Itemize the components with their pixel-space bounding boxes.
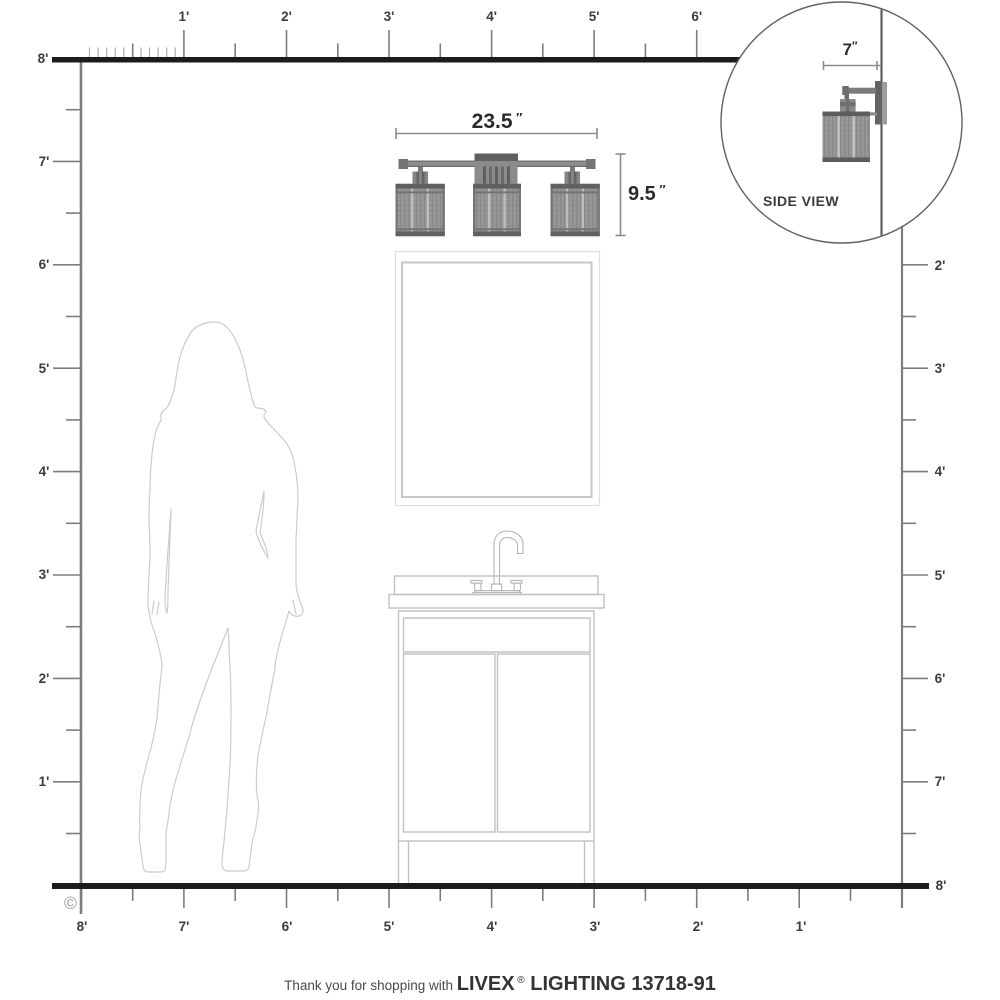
- svg-text:6': 6': [691, 9, 702, 24]
- svg-text:3': 3': [935, 361, 946, 376]
- svg-text:3': 3': [590, 919, 601, 934]
- svg-text:2': 2': [281, 9, 292, 24]
- svg-text:1': 1': [39, 774, 50, 789]
- svg-text:2': 2': [935, 258, 946, 273]
- svg-text:5': 5': [935, 568, 946, 583]
- svg-text:4': 4': [486, 9, 497, 24]
- svg-text:2': 2': [39, 671, 50, 686]
- svg-text:7': 7': [179, 919, 190, 934]
- svg-text:5': 5': [39, 361, 50, 376]
- svg-text:5': 5': [384, 919, 395, 934]
- svg-text:4': 4': [487, 919, 498, 934]
- svg-text:2': 2': [693, 919, 704, 934]
- svg-text:3': 3': [39, 567, 50, 582]
- svg-text:6': 6': [39, 257, 50, 272]
- svg-text:5': 5': [589, 9, 600, 24]
- svg-text:7': 7': [39, 154, 50, 169]
- svg-text:6': 6': [282, 919, 293, 934]
- svg-text:8': 8': [936, 878, 947, 893]
- svg-text:6': 6': [935, 671, 946, 686]
- svg-text:©: ©: [64, 893, 77, 913]
- svg-text:1': 1': [796, 919, 807, 934]
- svg-text:SIDE VIEW: SIDE VIEW: [763, 193, 839, 209]
- svg-text:4': 4': [39, 464, 50, 479]
- svg-text:8': 8': [38, 51, 49, 66]
- svg-text:4': 4': [935, 464, 946, 479]
- svg-text:3': 3': [384, 9, 395, 24]
- svg-text:1': 1': [179, 9, 190, 24]
- svg-text:8': 8': [77, 919, 88, 934]
- svg-text:7': 7': [935, 774, 946, 789]
